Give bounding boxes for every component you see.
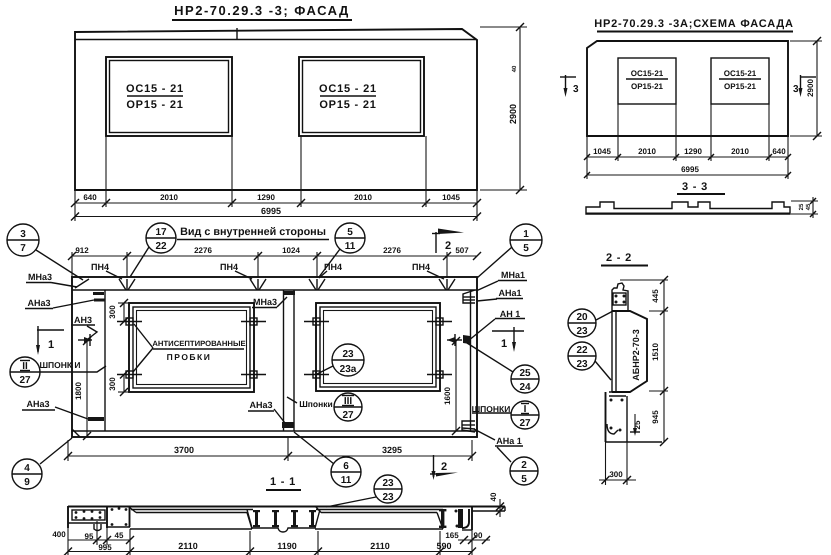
svg-text:2900: 2900: [806, 79, 815, 97]
svg-text:9: 9: [24, 477, 30, 488]
svg-text:23: 23: [342, 349, 354, 360]
svg-text:ОР15-21: ОР15-21: [631, 82, 664, 91]
svg-text:3 - 3: 3 - 3: [682, 181, 708, 193]
svg-text:2010: 2010: [638, 147, 656, 156]
svg-text:АНа 1: АНа 1: [496, 436, 522, 446]
svg-text:40: 40: [489, 492, 498, 501]
svg-text:912: 912: [75, 246, 89, 255]
svg-text:АБНР2-70-3: АБНР2-70-3: [631, 329, 641, 381]
svg-text:400: 400: [52, 530, 66, 539]
svg-text:23: 23: [576, 326, 588, 337]
svg-text:2 - 2: 2 - 2: [606, 252, 632, 264]
svg-text:300: 300: [609, 470, 623, 479]
svg-text:45: 45: [805, 203, 812, 210]
svg-text:НР2-70.29.3 -3; ФАСАД: НР2-70.29.3 -3; ФАСАД: [174, 3, 350, 18]
svg-text:Шпонки: Шпонки: [299, 399, 332, 409]
svg-text:АНа3: АНа3: [27, 298, 50, 308]
svg-text:1024: 1024: [282, 246, 300, 255]
svg-text:2010: 2010: [354, 193, 372, 202]
svg-text:300: 300: [108, 305, 117, 319]
svg-text:2: 2: [441, 461, 448, 473]
svg-text:ПРОБКИ: ПРОБКИ: [167, 352, 212, 362]
svg-text:1190: 1190: [277, 541, 297, 551]
svg-text:165: 165: [445, 531, 459, 540]
svg-text:Вид с внутренней стороны: Вид с внутренней стороны: [180, 226, 326, 238]
svg-text:АН 1: АН 1: [500, 309, 521, 319]
svg-text:11: 11: [341, 475, 352, 486]
svg-text:25: 25: [798, 203, 805, 210]
svg-text:17: 17: [155, 227, 167, 238]
svg-text:2: 2: [445, 240, 452, 252]
svg-text:945: 945: [651, 410, 660, 424]
svg-text:5: 5: [523, 243, 529, 254]
svg-text:1290: 1290: [684, 147, 702, 156]
svg-text:АНа3: АНа3: [249, 400, 272, 410]
svg-text:ОС15 - 21: ОС15 - 21: [319, 83, 377, 95]
svg-text:1: 1: [48, 339, 55, 351]
svg-text:23: 23: [382, 478, 394, 489]
svg-text:22: 22: [576, 345, 588, 356]
svg-text:590: 590: [436, 541, 451, 551]
svg-text:25: 25: [519, 368, 531, 379]
svg-text:АНТИСЕПТИРОВАННЫЕ: АНТИСЕПТИРОВАННЫЕ: [152, 339, 245, 348]
svg-text:995: 995: [98, 543, 112, 552]
svg-text:2010: 2010: [160, 193, 178, 202]
svg-text:2: 2: [521, 460, 527, 471]
svg-text:2110: 2110: [178, 541, 198, 551]
svg-text:23: 23: [576, 359, 588, 370]
svg-text:АН3: АН3: [74, 315, 92, 325]
svg-text:ОР15 - 21: ОР15 - 21: [319, 99, 376, 111]
svg-text:27: 27: [519, 418, 531, 429]
svg-text:445: 445: [651, 289, 660, 303]
svg-text:27: 27: [19, 375, 31, 386]
svg-text:24: 24: [519, 382, 531, 393]
svg-text:2900: 2900: [508, 104, 518, 124]
svg-text:ШПОНК И: ШПОНК И: [39, 360, 80, 370]
svg-text:1045: 1045: [442, 193, 460, 202]
svg-text:1: 1: [523, 229, 529, 240]
svg-text:1 - 1: 1 - 1: [270, 476, 296, 488]
svg-text:1045: 1045: [593, 147, 611, 156]
svg-text:3: 3: [573, 84, 579, 95]
svg-text:640: 640: [83, 193, 97, 202]
svg-text:3700: 3700: [174, 445, 194, 455]
svg-text:6995: 6995: [681, 165, 699, 174]
svg-text:20: 20: [576, 312, 588, 323]
svg-text:ОС15-21: ОС15-21: [724, 69, 757, 78]
svg-text:6995: 6995: [261, 206, 281, 216]
svg-text:2276: 2276: [194, 246, 212, 255]
svg-text:АНа3: АНа3: [26, 399, 49, 409]
svg-text:5: 5: [347, 227, 353, 238]
svg-text:3: 3: [793, 84, 799, 95]
svg-text:1510: 1510: [651, 343, 660, 361]
svg-text:4: 4: [24, 463, 30, 474]
svg-text:22: 22: [155, 241, 167, 252]
svg-text:2110: 2110: [370, 541, 390, 551]
svg-text:2010: 2010: [731, 147, 749, 156]
svg-text:1800: 1800: [74, 382, 83, 400]
svg-text:3295: 3295: [382, 445, 402, 455]
svg-text:1600: 1600: [443, 387, 452, 405]
svg-text:45: 45: [115, 531, 124, 540]
svg-text:ОС15 - 21: ОС15 - 21: [126, 83, 184, 95]
svg-text:5: 5: [521, 474, 527, 485]
svg-text:МНа3: МНа3: [253, 297, 277, 307]
svg-text:МНа1: МНа1: [501, 270, 525, 280]
svg-text:11: 11: [345, 241, 356, 252]
svg-text:АНа1: АНа1: [498, 288, 521, 298]
svg-text:6: 6: [343, 461, 349, 472]
svg-text:ОР15-21: ОР15-21: [724, 82, 757, 91]
svg-text:23: 23: [382, 492, 394, 503]
svg-text:2276: 2276: [383, 246, 401, 255]
svg-text:23а: 23а: [340, 364, 357, 375]
svg-text:640: 640: [772, 147, 786, 156]
svg-text:507: 507: [455, 246, 469, 255]
svg-text:1290: 1290: [257, 193, 275, 202]
svg-text:3: 3: [20, 229, 26, 240]
svg-text:90: 90: [474, 531, 483, 540]
svg-text:95: 95: [85, 532, 94, 541]
svg-text:ОР15 - 21: ОР15 - 21: [126, 99, 183, 111]
svg-text:7: 7: [20, 243, 26, 254]
svg-text:1: 1: [501, 338, 508, 350]
svg-text:МНа3: МНа3: [28, 272, 52, 282]
svg-text:27: 27: [342, 410, 354, 421]
svg-text:40: 40: [511, 65, 518, 72]
svg-text:НР2-70.29.3 -3А;СХЕМА ФАСАДА: НР2-70.29.3 -3А;СХЕМА ФАСАДА: [594, 18, 794, 30]
svg-text:25: 25: [633, 420, 642, 429]
svg-text:300: 300: [108, 377, 117, 391]
svg-text:ОС15-21: ОС15-21: [631, 69, 664, 78]
